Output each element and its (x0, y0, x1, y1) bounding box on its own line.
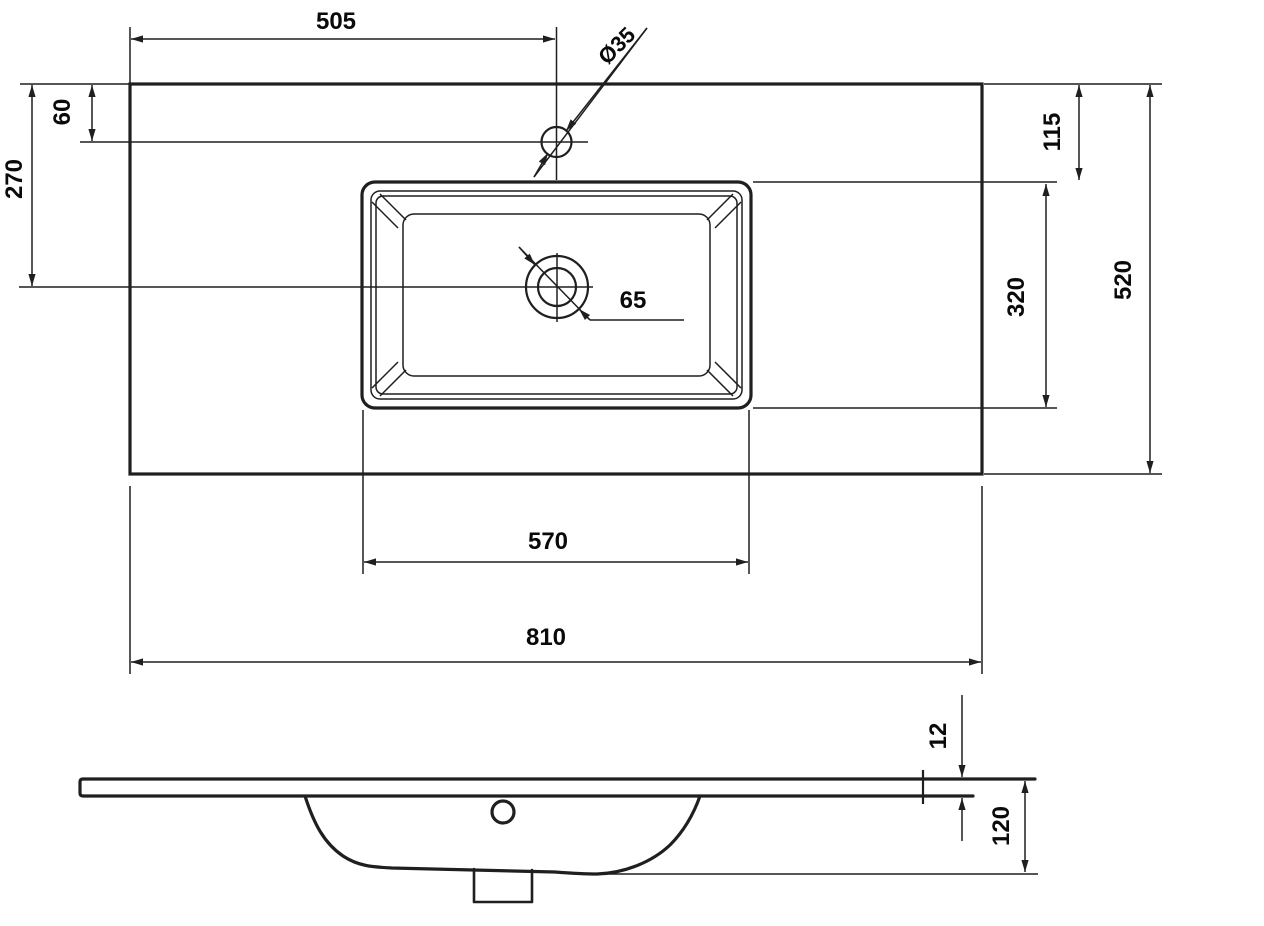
dim-label-505: 505 (316, 8, 356, 35)
drawing-canvas: 505 Ø35 60 270 65 (0, 0, 1264, 926)
drain-outlet-stub (474, 869, 532, 902)
dim-faucet-diameter: Ø35 (534, 22, 647, 177)
dim-label-570: 570 (528, 528, 568, 555)
side-view: 12 120 (80, 695, 1038, 902)
faucet-hole (80, 27, 588, 180)
dim-slab-thickness: 12 (925, 695, 962, 841)
top-view: 505 Ø35 60 270 65 (1, 8, 1162, 674)
leader-arrow-upper (519, 247, 535, 265)
dim-basin-depth: 320 (753, 184, 1057, 408)
dim-label-12: 12 (925, 723, 952, 750)
overflow-hole (492, 801, 514, 823)
countertop-slab-section (80, 779, 1035, 796)
dim-label-120: 120 (988, 806, 1015, 846)
dim-faucet-from-left: 505 (130, 8, 555, 84)
dim-label-diameter-35: Ø35 (593, 22, 640, 69)
dim-basin-height: 120 (988, 781, 1025, 872)
leader-arrow-lower (534, 153, 548, 177)
washbasin-technical-drawing: 505 Ø35 60 270 65 (0, 0, 1264, 926)
bowl-profile (305, 796, 700, 874)
dim-label-520: 520 (1110, 260, 1137, 300)
dim-label-65: 65 (620, 287, 647, 314)
drain-hole (19, 253, 593, 322)
dim-label-320: 320 (1003, 277, 1030, 317)
dim-rim-from-back-edge: 115 (753, 85, 1079, 182)
dim-countertop-width: 810 (130, 486, 982, 674)
dim-faucet-from-back-edge: 60 (20, 84, 130, 141)
dim-label-270: 270 (1, 159, 28, 199)
dim-label-115: 115 (1039, 113, 1066, 152)
leader-arrow-lower (579, 309, 590, 320)
dim-label-810: 810 (526, 624, 566, 651)
dim-drain-from-back-edge: 270 (1, 85, 32, 286)
dim-label-60: 60 (49, 99, 76, 126)
dim-basin-width: 570 (363, 410, 749, 574)
